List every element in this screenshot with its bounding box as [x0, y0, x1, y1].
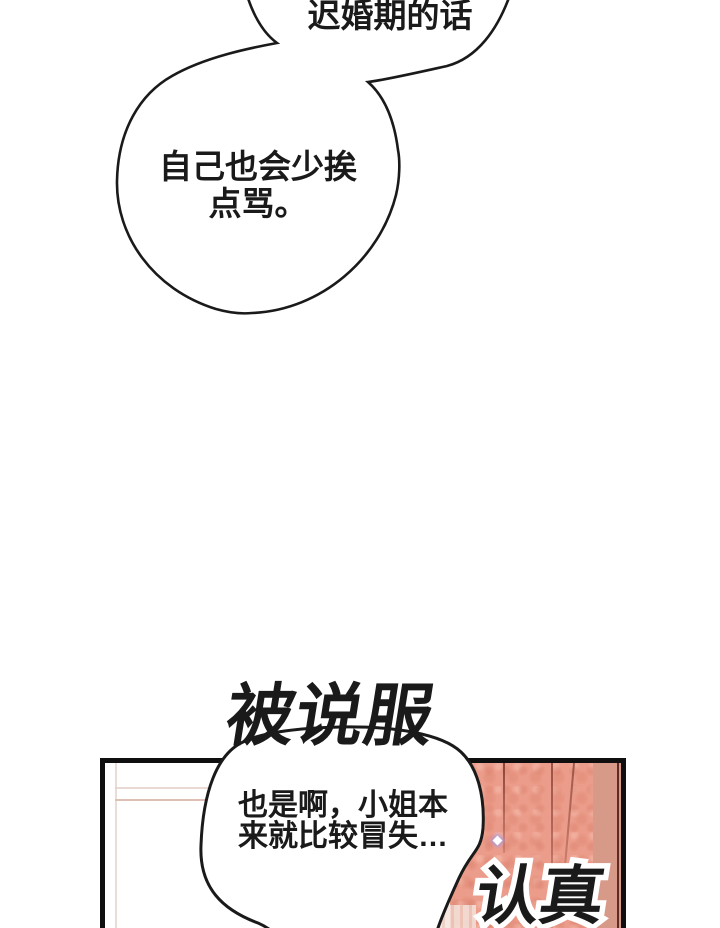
speech-bubble-bottom-text-line1: 也是啊，小姐本 — [205, 790, 481, 821]
speech-bubble-bottom-text-line2: 来就比较冒失… — [205, 821, 481, 852]
speech-bubble-bottom-text: 也是啊，小姐本 来就比较冒失… — [205, 790, 481, 852]
speech-bubble-top-text: 迟婚期的话 — [302, 0, 478, 37]
sfx-persuaded: 被说服 — [220, 660, 443, 759]
comic-page: 认真 认真 迟婚期的话 自己也会少挨 点骂。 被说服 也是啊，小姐本 来就比较冒… — [0, 0, 720, 928]
speech-bubble-middle-text-line1: 自己也会少挨 — [118, 148, 398, 185]
speech-bubble-middle-text: 自己也会少挨 点骂。 — [118, 148, 398, 222]
speech-bubble-middle-text-line2: 点骂。 — [118, 185, 398, 222]
